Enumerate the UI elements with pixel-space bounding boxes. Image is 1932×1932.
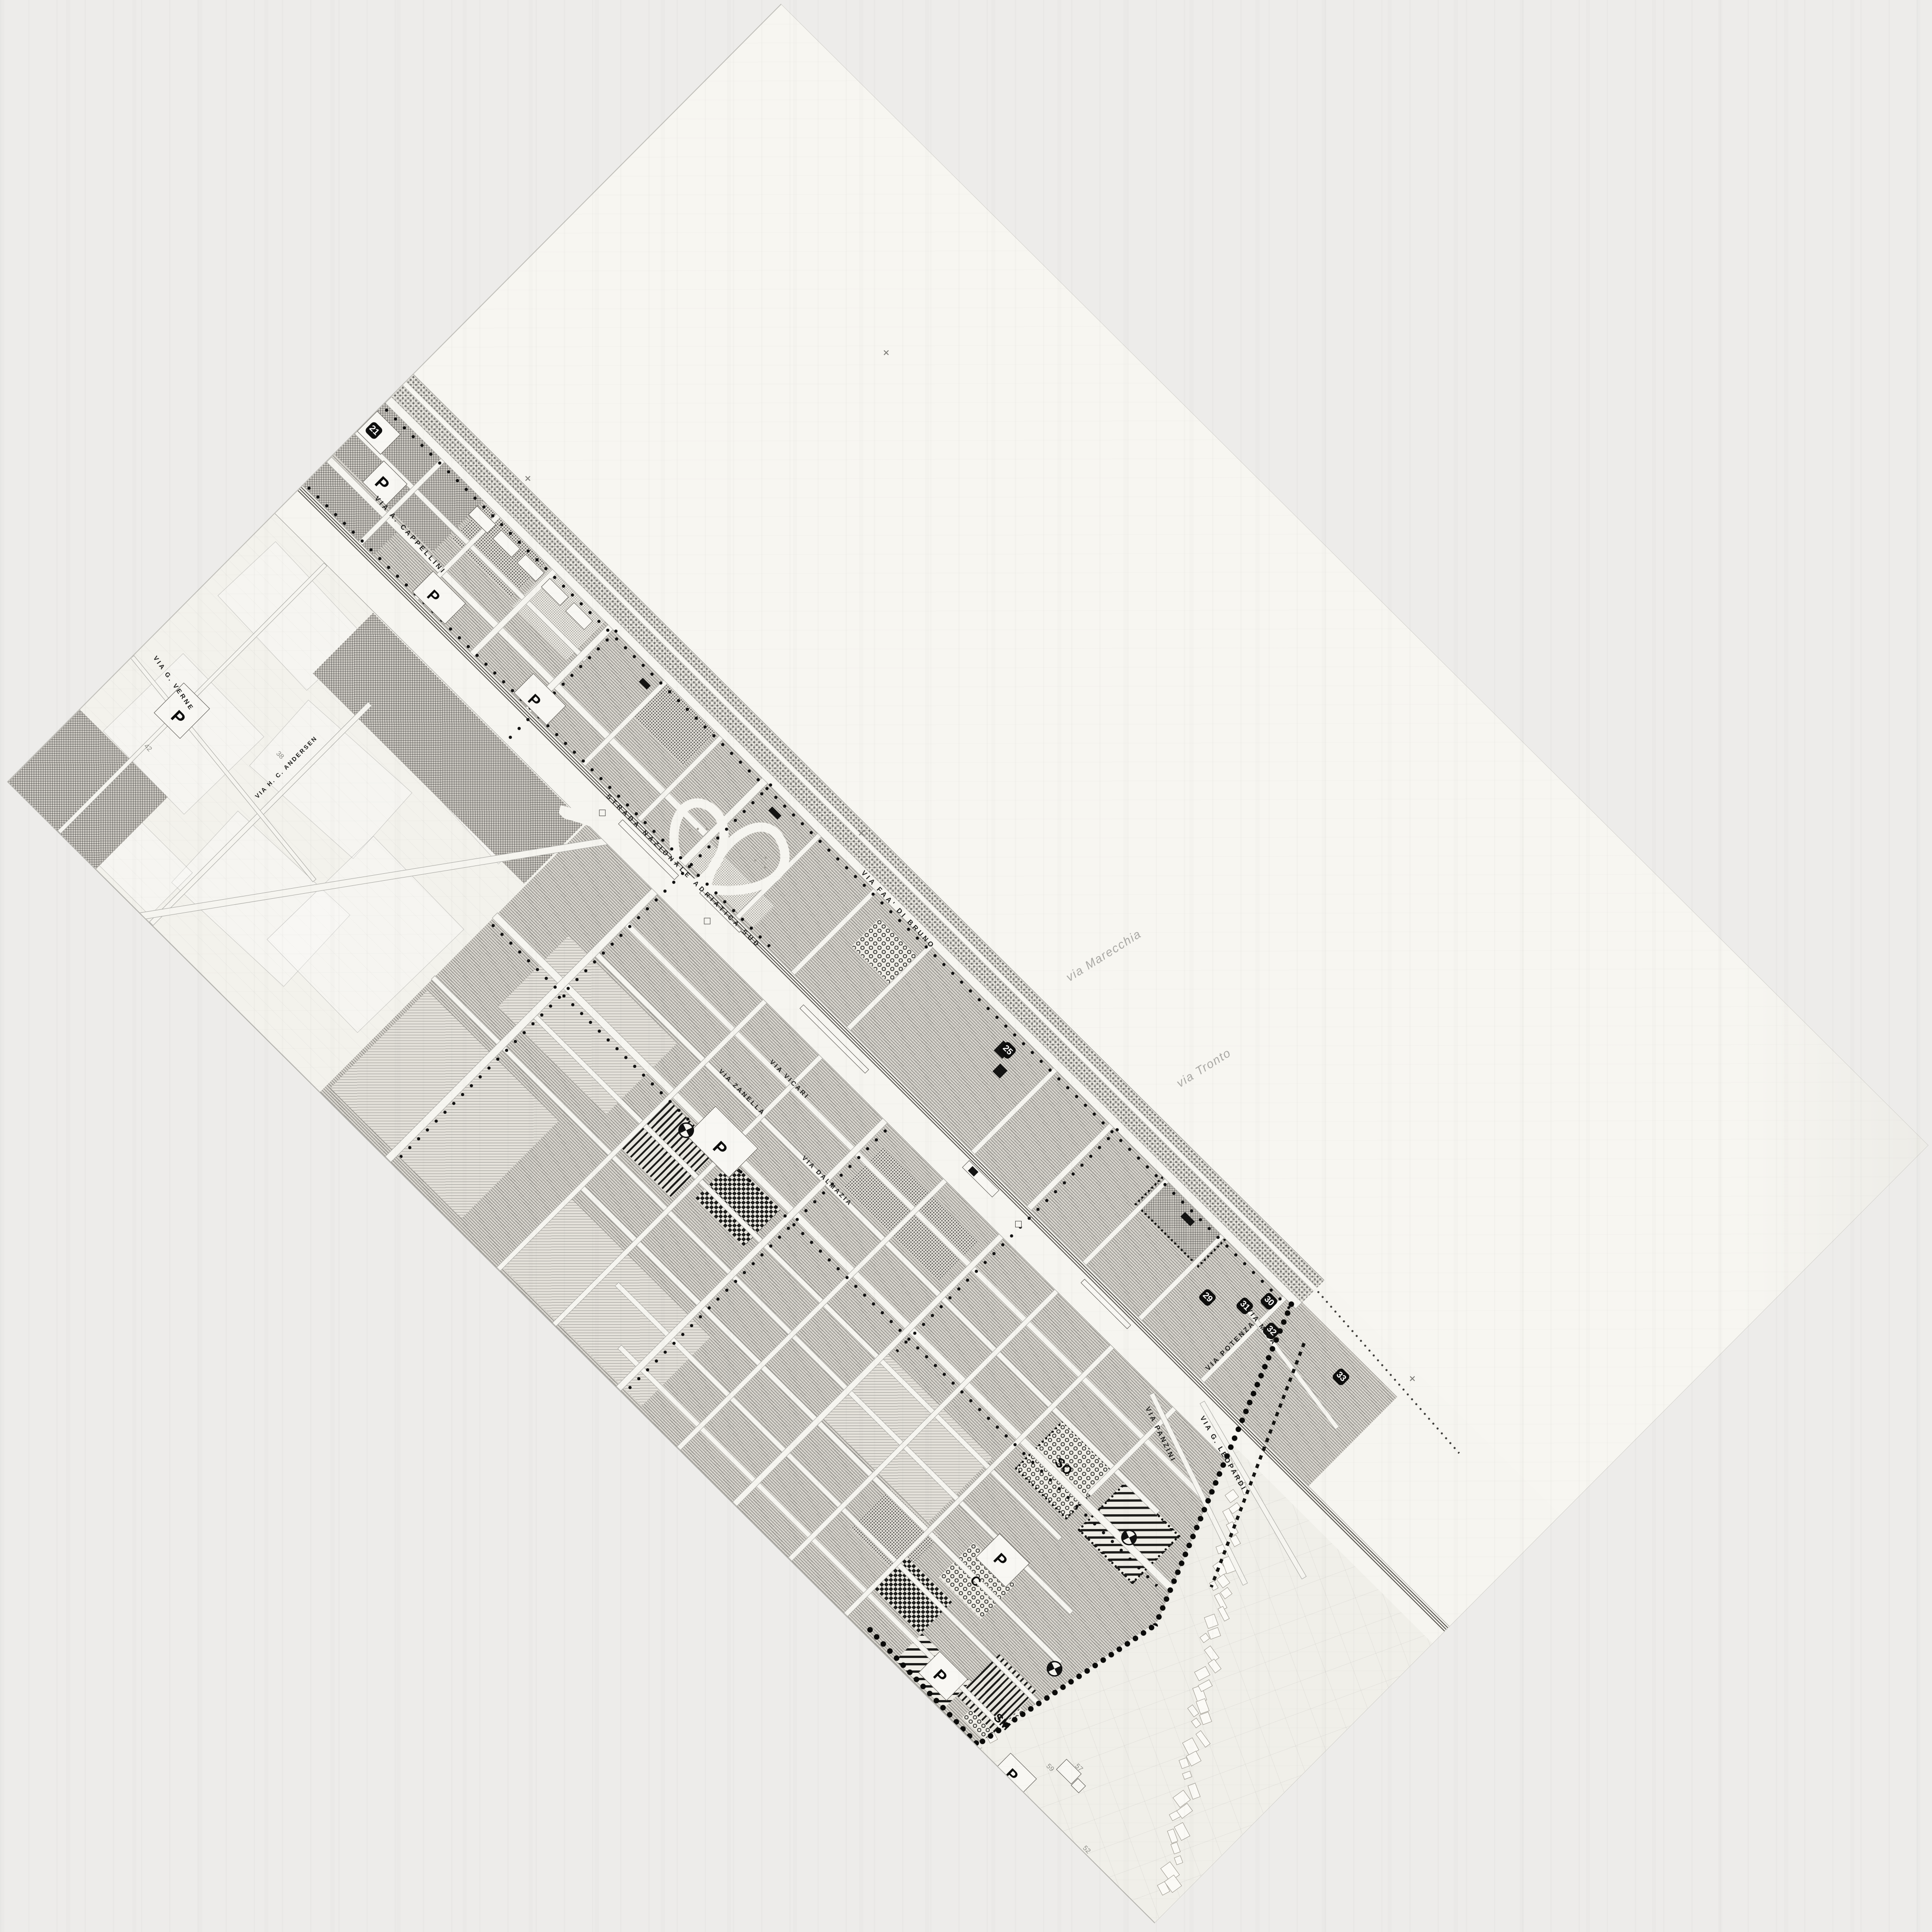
village-building [1216,1574,1230,1588]
village-building [1225,1489,1239,1503]
village-building [1195,1731,1211,1748]
village-building [1174,1855,1183,1865]
village-building [1170,1842,1181,1854]
diamond-marker [599,810,606,816]
plan-sheet: 21252930313233PPPPPPPPSOSMCSTRADA NAZION… [7,4,1928,1923]
village-building [1207,1627,1221,1639]
village-building [1204,1614,1218,1629]
village-building [1194,1666,1210,1681]
diamond-marker [704,918,710,924]
village-building [1188,1783,1201,1799]
village-building [1218,1606,1230,1621]
village-building [1191,1718,1201,1728]
diamond-marker [1015,1221,1022,1227]
village-building [1208,1659,1222,1674]
village-building [1198,1679,1213,1692]
registration-cross-icon: + [1405,1371,1420,1386]
scanned-page: 21252930313233PPPPPPPPSOSMCSTRADA NAZION… [0,0,1932,1932]
village-building [1182,1771,1192,1780]
